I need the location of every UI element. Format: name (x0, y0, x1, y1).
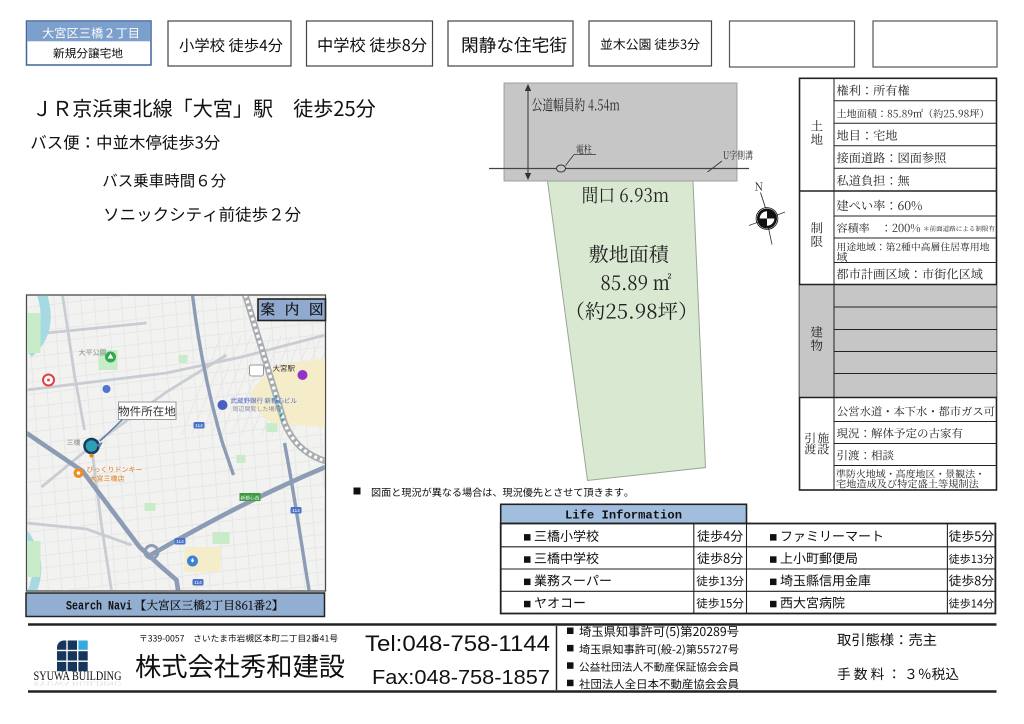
svg-text:114: 114 (292, 508, 300, 514)
svg-text:114: 114 (176, 539, 184, 545)
svg-text:Tel:048-758-1144: Tel:048-758-1144 (365, 631, 550, 656)
svg-text:SYUWA BUILDING: SYUWA BUILDING (34, 680, 122, 687)
svg-text:114: 114 (195, 423, 203, 429)
svg-text:114: 114 (194, 580, 202, 586)
svg-text:Fax:048-758-1857: Fax:048-758-1857 (372, 666, 550, 689)
svg-text:Life Information: Life Information (565, 509, 682, 523)
svg-text:Search Navi: Search Navi (66, 599, 132, 614)
